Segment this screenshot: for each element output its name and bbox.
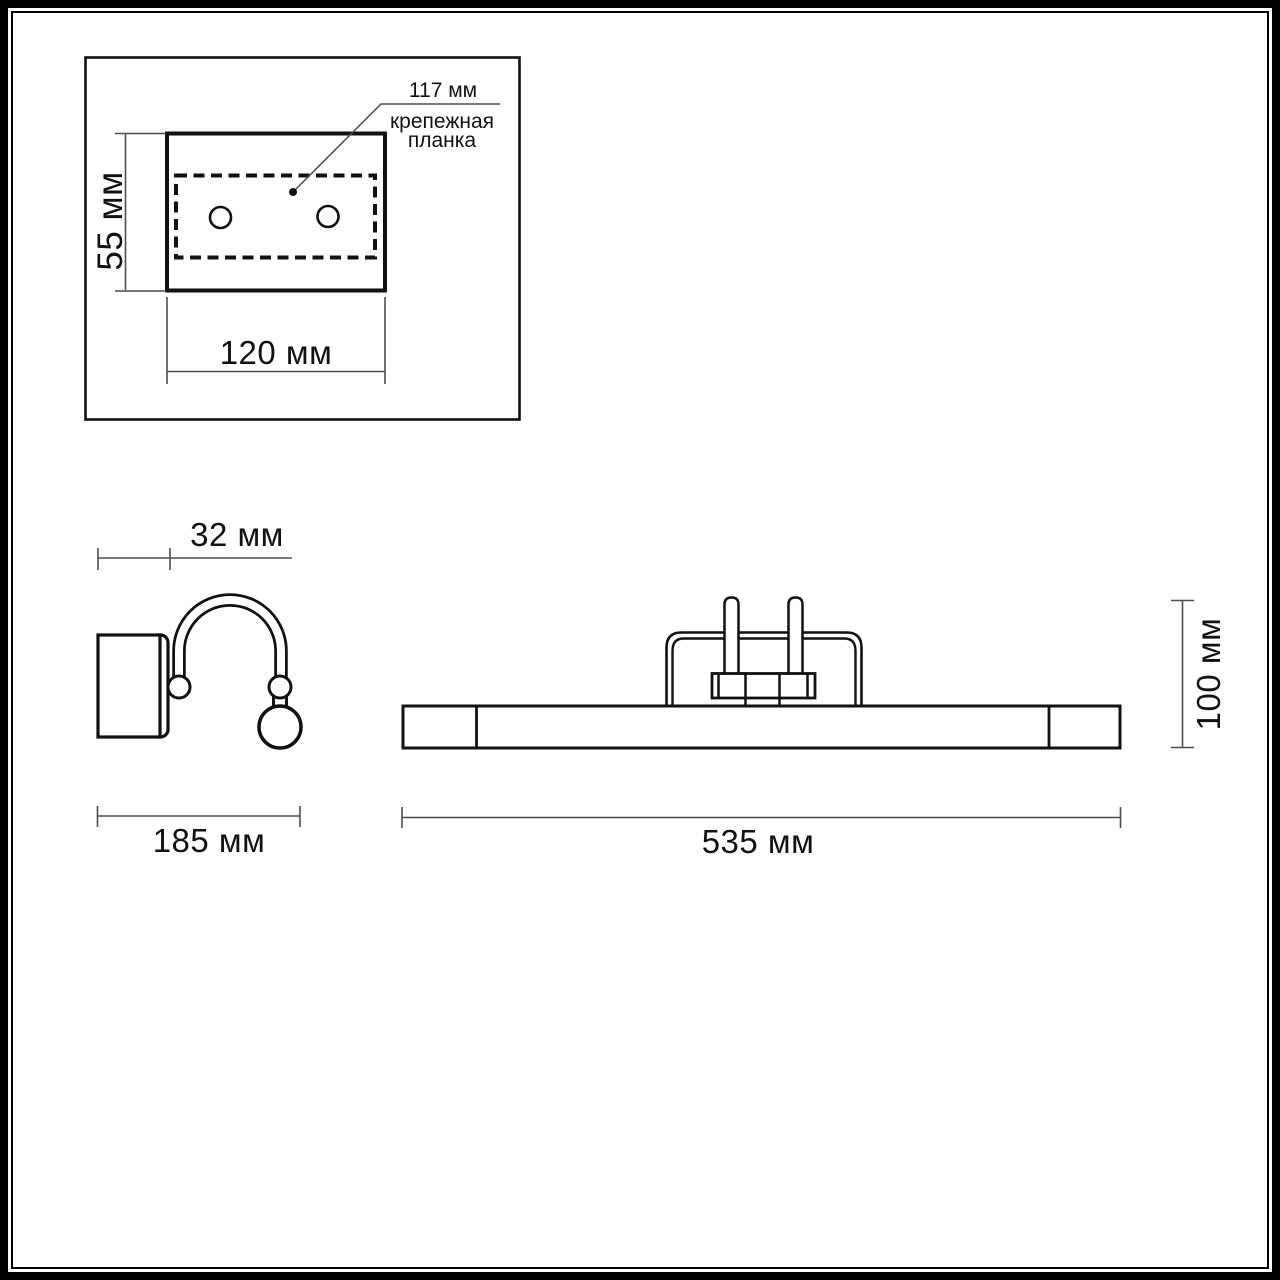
mounting-plate-view: 117 мм крепежная планка 55 мм 120 мм xyxy=(86,58,520,420)
drawing-sheet: 117 мм крепежная планка 55 мм 120 мм 32 … xyxy=(0,0,1280,1280)
stem-left xyxy=(725,598,739,677)
lamp-sphere xyxy=(259,706,301,748)
dim-100-label: 100 мм xyxy=(1190,618,1227,731)
dim-32-ticks xyxy=(98,548,170,570)
side-view: 32 мм 185 мм xyxy=(98,516,302,859)
arm-arc-tube-core xyxy=(179,600,281,684)
dim-120-label: 120 мм xyxy=(220,334,333,371)
screw-hole-right xyxy=(318,206,339,227)
dim-535-label: 535 мм xyxy=(702,823,815,860)
callout-text-line2: планка xyxy=(408,129,477,152)
wall-plate-body xyxy=(98,635,160,737)
dim-55-label: 55 мм xyxy=(91,171,130,270)
arm-joint-ball-right xyxy=(269,676,291,698)
front-view: 100 мм 535 мм xyxy=(402,598,1227,861)
dim-32-label: 32 мм xyxy=(190,516,284,553)
dim-185-label: 185 мм xyxy=(153,822,266,859)
backplate-outline xyxy=(167,134,385,291)
arm-joint-ball-left xyxy=(168,676,190,698)
callout-dot xyxy=(289,188,297,196)
screw-hole-left xyxy=(210,207,231,228)
technical-drawing-canvas: 117 мм крепежная планка 55 мм 120 мм 32 … xyxy=(0,0,1280,1280)
stem-right xyxy=(789,598,803,677)
callout-dimension-label: 117 мм xyxy=(409,79,477,102)
clamp-block xyxy=(712,674,815,699)
light-bar xyxy=(403,706,1120,748)
